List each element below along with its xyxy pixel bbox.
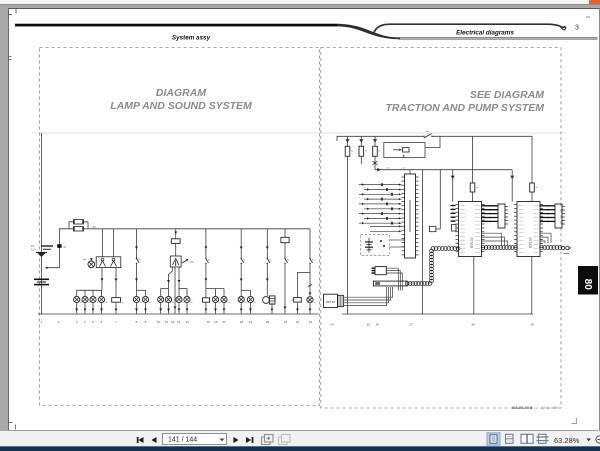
svg-text:15: 15 (206, 320, 210, 324)
svg-text:28: 28 (471, 323, 475, 327)
svg-text:5: 5 (92, 320, 94, 324)
svg-text:14: 14 (185, 320, 189, 324)
svg-text:25: 25 (367, 323, 371, 327)
svg-text:EV100: EV100 (529, 237, 533, 247)
svg-text:9: 9 (144, 320, 146, 324)
svg-text:10: 10 (157, 320, 161, 324)
svg-text:SEE DIAGRAM: SEE DIAGRAM (470, 89, 544, 101)
svg-text:141 / 144: 141 / 144 (168, 437, 197, 444)
svg-text:4: 4 (84, 320, 86, 324)
svg-text:13: 13 (177, 320, 181, 324)
svg-text:18: 18 (240, 320, 244, 324)
svg-text:19: 19 (249, 320, 253, 324)
svg-text:8: 8 (136, 320, 138, 324)
svg-text:(3h/12,t3/60): (3h/12,t3/60) (541, 406, 559, 410)
svg-text:12V: 12V (31, 248, 36, 252)
svg-text:21: 21 (284, 320, 288, 324)
svg-text:24: 24 (330, 323, 334, 327)
svg-text:DIAGRAM: DIAGRAM (156, 87, 206, 99)
svg-text:22: 22 (296, 320, 300, 324)
svg-text:12: 12 (171, 320, 175, 324)
svg-text:7: 7 (115, 320, 117, 324)
svg-text:80: 80 (582, 279, 593, 291)
svg-text:29: 29 (530, 323, 534, 327)
svg-text:27: 27 (409, 323, 413, 327)
svg-text:2: 2 (58, 320, 60, 324)
svg-text:EV100: EV100 (470, 237, 474, 247)
svg-text:1: 1 (41, 320, 43, 324)
svg-text:20: 20 (266, 320, 270, 324)
svg-text:80A.20L-08 t6: 80A.20L-08 t6 (512, 406, 533, 410)
svg-text:System assy: System assy (172, 35, 211, 42)
svg-text:17: 17 (222, 320, 226, 324)
svg-text:3: 3 (575, 25, 579, 32)
svg-text:6: 6 (100, 320, 102, 324)
svg-text:Electrical diagrams: Electrical diagrams (456, 30, 514, 37)
svg-text:23: 23 (309, 320, 313, 324)
svg-text:30: 30 (63, 245, 67, 249)
svg-text:M5: M5 (190, 260, 194, 264)
svg-text:11: 11 (165, 320, 168, 324)
svg-text:3: 3 (76, 320, 78, 324)
svg-text:TRACTION AND PUMP SYSTEM: TRACTION AND PUMP SYSTEM (386, 102, 545, 114)
svg-text:LAMP AND SOUND SYSTEM: LAMP AND SOUND SYSTEM (110, 100, 252, 112)
svg-text:DPT16: DPT16 (326, 300, 335, 304)
svg-text:26: 26 (376, 323, 380, 327)
svg-text:16: 16 (214, 320, 218, 324)
svg-text:63.28%: 63.28% (554, 436, 580, 445)
